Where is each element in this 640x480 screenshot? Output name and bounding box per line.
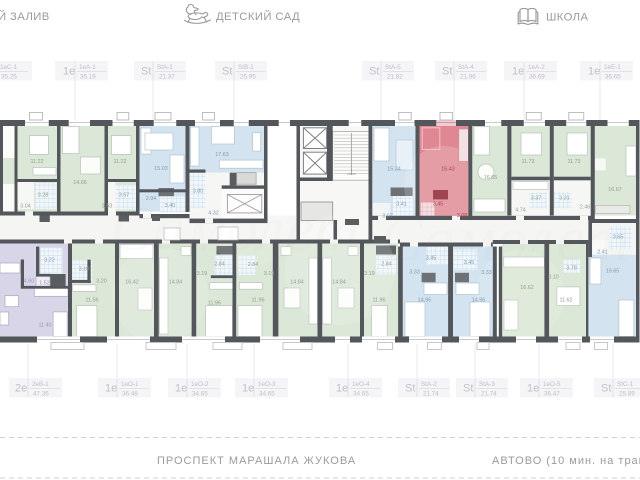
svg-text:ДЕТСКИЙ САД: ДЕТСКИЙ САД (216, 10, 300, 23)
svg-text:34.65: 34.65 (192, 391, 208, 398)
svg-text:16.42: 16.42 (125, 280, 139, 286)
svg-text:11.22: 11.22 (30, 159, 43, 165)
svg-text:1е: 1е (512, 66, 524, 78)
svg-text:21.96: 21.96 (460, 74, 476, 81)
svg-text:3.22: 3.22 (44, 258, 55, 264)
svg-text:3.19: 3.19 (197, 271, 208, 277)
svg-text:St: St (463, 383, 473, 395)
svg-text:1е: 1е (63, 66, 75, 78)
svg-text:36.48: 36.48 (122, 391, 138, 398)
svg-text:1еЕ-1: 1еЕ-1 (604, 64, 621, 71)
svg-text:11.62: 11.62 (559, 298, 572, 304)
svg-text:1е: 1е (105, 383, 117, 395)
svg-text:2е: 2е (15, 383, 27, 395)
svg-text:21.74: 21.74 (423, 391, 439, 398)
svg-text:StA-1: StA-1 (157, 64, 173, 71)
svg-text:1е: 1е (527, 383, 539, 395)
svg-text:3.10: 3.10 (79, 267, 90, 273)
svg-text:11.22: 11.22 (113, 159, 126, 165)
svg-text:34.65: 34.65 (259, 391, 275, 398)
svg-text:2еВ-1: 2еВ-1 (32, 381, 49, 388)
svg-text:1еО-1: 1еО-1 (121, 381, 139, 388)
svg-text:АВТОВО (10 мин. на трансп: АВТОВО (10 мин. на трансп (492, 455, 640, 467)
svg-text:3.20: 3.20 (96, 279, 107, 285)
svg-text:1е: 1е (336, 383, 348, 395)
svg-text:StC-1: StC-1 (617, 381, 634, 388)
svg-text:1еА-2: 1еА-2 (528, 64, 545, 71)
svg-text:14.84: 14.84 (290, 280, 304, 286)
svg-text:16.67: 16.67 (608, 187, 622, 193)
svg-text:St: St (141, 66, 151, 78)
svg-text:14.96: 14.96 (472, 298, 486, 304)
svg-text:36.65: 36.65 (605, 74, 621, 81)
svg-text:3.31: 3.31 (559, 196, 570, 202)
svg-text:1еО-5: 1еО-5 (543, 381, 561, 388)
svg-text:11.96: 11.96 (372, 298, 385, 304)
svg-text:StB-1: StB-1 (238, 64, 254, 71)
svg-text:16.62: 16.62 (520, 285, 534, 291)
svg-text:Й ЗАЛИВ: Й ЗАЛИВ (0, 10, 50, 23)
svg-text:21.74: 21.74 (481, 391, 497, 398)
svg-text:3.04: 3.04 (20, 204, 31, 210)
svg-text:1еО-2: 1еО-2 (191, 381, 209, 388)
svg-text:11.56: 11.56 (85, 298, 98, 304)
svg-text:15.03: 15.03 (154, 166, 168, 172)
svg-text:11.96: 11.96 (208, 301, 221, 307)
svg-text:21.82: 21.82 (387, 74, 403, 81)
svg-text:1еА-1: 1еА-1 (79, 64, 96, 71)
svg-text:Самолет: Самолет (110, 193, 360, 264)
svg-text:11.96: 11.96 (251, 298, 264, 304)
svg-text:St: St (222, 66, 232, 78)
svg-text:3.19: 3.19 (364, 271, 375, 277)
svg-text:35.25: 35.25 (1, 74, 17, 81)
svg-text:1еО-3: 1еО-3 (258, 381, 276, 388)
svg-text:17.63: 17.63 (215, 152, 229, 158)
svg-text:StA-3: StA-3 (479, 381, 495, 388)
svg-text:35.16: 35.16 (80, 74, 96, 81)
svg-text:1е: 1е (175, 383, 187, 395)
svg-text:11.73: 11.73 (521, 159, 534, 165)
svg-text:21.37: 21.37 (159, 74, 175, 81)
svg-text:StA-5: StA-5 (385, 64, 401, 71)
svg-text:StA-2: StA-2 (421, 381, 437, 388)
svg-text:25.95: 25.95 (240, 74, 256, 81)
svg-text:ПРОСПЕКТ МАРАШАЛА ЖУКОВА: ПРОСПЕКТ МАРАШАЛА ЖУКОВА (157, 455, 356, 467)
svg-text:14.84: 14.84 (169, 280, 183, 286)
svg-text:14.96: 14.96 (418, 298, 432, 304)
svg-text:15.43: 15.43 (441, 167, 455, 173)
svg-text:4.60: 4.60 (24, 279, 35, 285)
svg-text:St: St (369, 66, 379, 78)
svg-text:1.52: 1.52 (39, 281, 50, 287)
svg-text:St: St (442, 66, 452, 78)
svg-text:Самолет: Самолет (380, 203, 630, 274)
svg-text:15.34: 15.34 (387, 167, 401, 173)
svg-text:36.47: 36.47 (544, 391, 560, 398)
svg-text:St: St (601, 383, 611, 395)
svg-text:34.65: 34.65 (353, 391, 369, 398)
svg-text:3.19: 3.19 (264, 271, 275, 277)
svg-text:3.28: 3.28 (38, 193, 49, 199)
svg-text:1еС-1: 1еС-1 (0, 64, 18, 71)
svg-text:36.69: 36.69 (529, 74, 545, 81)
svg-text:16.65: 16.65 (484, 175, 498, 181)
svg-text:1е: 1е (242, 383, 254, 395)
svg-text:11.73: 11.73 (567, 159, 580, 165)
svg-text:47.36: 47.36 (33, 391, 49, 398)
svg-text:14.66: 14.66 (73, 180, 87, 186)
svg-text:3.10: 3.10 (548, 275, 559, 281)
svg-text:St: St (405, 383, 415, 395)
svg-text:StA-4: StA-4 (458, 64, 474, 71)
svg-text:14.84: 14.84 (332, 280, 346, 286)
svg-text:1еО-4: 1еО-4 (352, 381, 370, 388)
svg-text:3.37: 3.37 (531, 196, 542, 202)
svg-text:25.89: 25.89 (619, 391, 635, 398)
svg-text:11.40: 11.40 (38, 323, 51, 329)
svg-text:1е: 1е (588, 66, 600, 78)
svg-text:ШКОЛА: ШКОЛА (546, 12, 588, 24)
